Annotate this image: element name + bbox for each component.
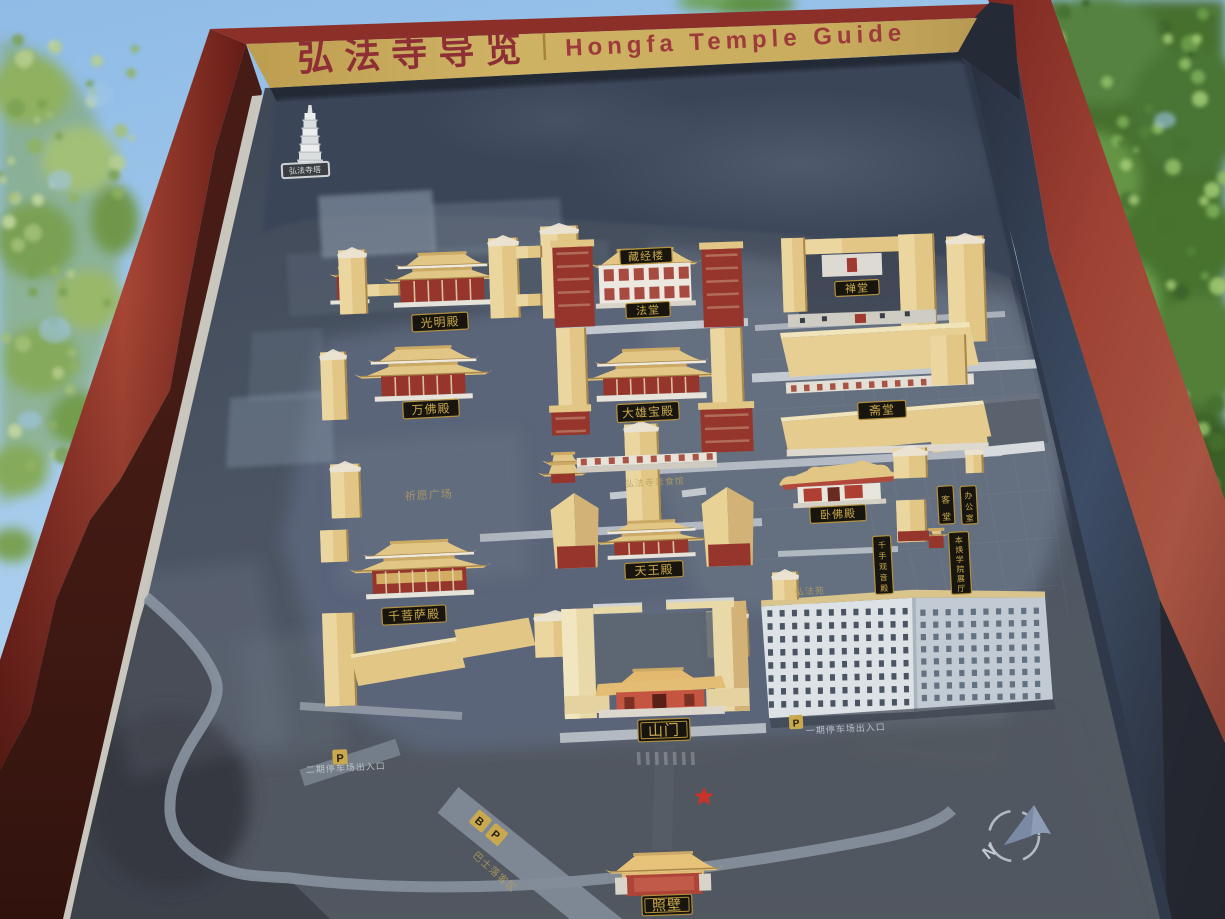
- svg-text:堂: 堂: [942, 511, 952, 522]
- svg-text:室: 室: [965, 513, 974, 523]
- svg-text:山门: 山门: [648, 722, 681, 740]
- svg-text:厅: 厅: [957, 584, 965, 593]
- svg-text:照壁: 照壁: [652, 897, 683, 914]
- svg-text:展: 展: [957, 574, 965, 583]
- svg-text:手: 手: [878, 550, 887, 560]
- svg-text:法堂: 法堂: [636, 302, 661, 317]
- svg-text:千: 千: [878, 540, 887, 550]
- svg-text:殿: 殿: [880, 584, 888, 593]
- svg-text:卧佛殿: 卧佛殿: [820, 507, 857, 522]
- svg-text:万佛殿: 万佛殿: [411, 401, 451, 417]
- svg-text:P: P: [336, 753, 344, 765]
- svg-text:观: 观: [879, 562, 887, 571]
- svg-text:光明殿: 光明殿: [420, 314, 460, 330]
- svg-text:客: 客: [941, 494, 951, 505]
- svg-text:天王殿: 天王殿: [634, 562, 674, 578]
- svg-text:学: 学: [956, 554, 965, 564]
- svg-text:院: 院: [956, 564, 965, 574]
- svg-text:公: 公: [965, 502, 973, 511]
- svg-text:大雄宝殿: 大雄宝殿: [622, 403, 675, 421]
- svg-text:音: 音: [879, 572, 888, 582]
- svg-text:千菩萨殿: 千菩萨殿: [388, 607, 441, 624]
- svg-text:禅堂: 禅堂: [845, 280, 870, 295]
- svg-text:焕: 焕: [955, 544, 964, 554]
- svg-text:弘法寺塔: 弘法寺塔: [289, 164, 321, 176]
- svg-text:办: 办: [964, 490, 973, 500]
- svg-text:弘法苑: 弘法苑: [795, 584, 826, 597]
- svg-text:斋堂: 斋堂: [869, 402, 896, 418]
- svg-text:P: P: [792, 718, 800, 729]
- svg-text:本: 本: [955, 535, 964, 545]
